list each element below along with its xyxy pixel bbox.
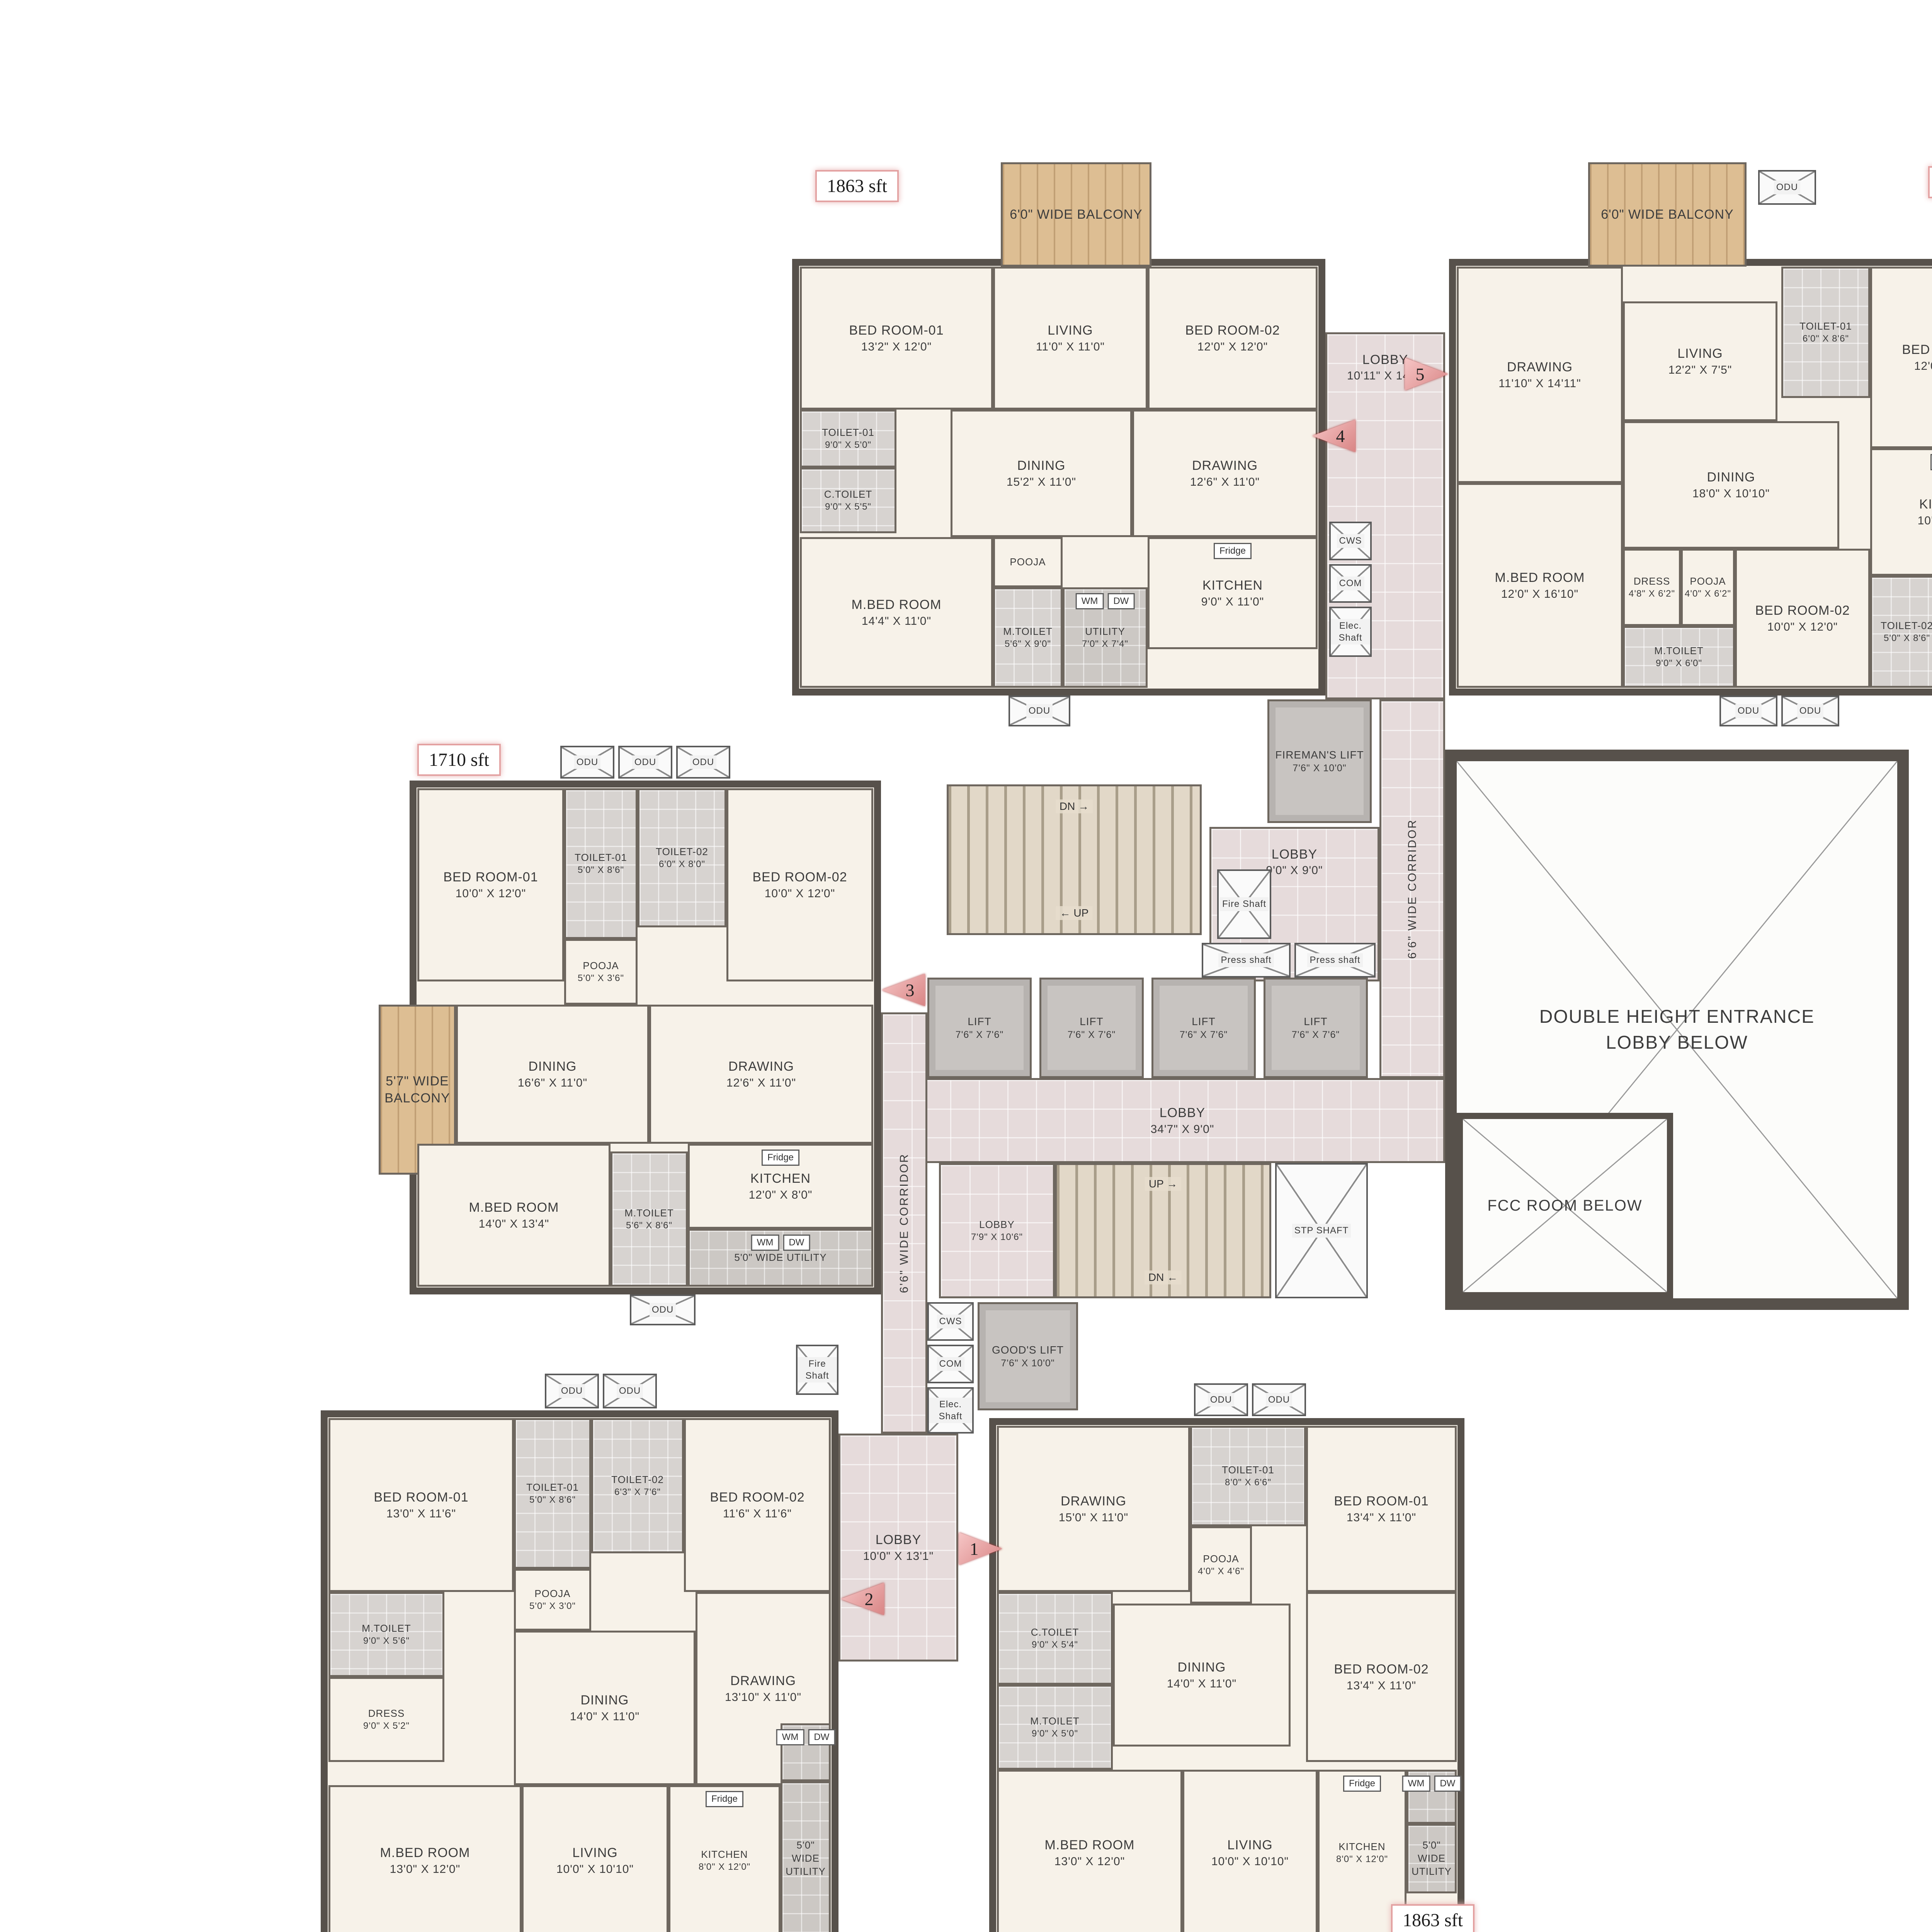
a-101-utility: WMDW [1406,1770,1457,1824]
a-101-m-bed-room: M.BED ROOM13'0" X 12'0" [997,1770,1182,1932]
room-label: ODU [1774,180,1800,194]
room-label: M.BED ROOM13'0" X 12'0" [1045,1837,1135,1869]
room-label: POOJA5'0" X 3'0" [529,1587,576,1612]
room-name: TOILET-02 [656,845,708,859]
room-label: 5'7" WIDE BALCONY [381,1073,454,1107]
room-dims: 7'6" X 7'6" [956,1029,1003,1041]
room-dims: 6'3" X 7'6" [611,1486,664,1498]
room-dims: 13'4" X 11'0" [1334,1510,1429,1525]
core-fcc-room-below: FCC ROOM BELOW [1457,1113,1673,1298]
a-105-dining: DINING18'0" X 10'10" [1623,421,1839,549]
room-name: 6'6" WIDE CORRIDOR [897,1153,912,1293]
a-105-m-toilet: M.TOILET9'0" X 6'0" [1623,626,1735,688]
core-press-shaft: Press shaft [1294,943,1376,978]
room-name: ODU [1774,180,1800,194]
room-name: 6'0" WIDE BALCONY [1601,206,1734,223]
core-com: COM [1329,564,1372,603]
room-name: C.TOILET [1031,1626,1079,1639]
room-dims: 9'0" X 5'0" [822,439,874,451]
room-name: DINING [1692,469,1770,486]
core-lift: LIFT7'6" X 7'6" [1264,978,1368,1078]
room-name: LOBBY [971,1218,1023,1231]
room-dims: 34'7" X 9'0" [1151,1122,1214,1137]
a-103-odu: ODU [676,746,730,779]
room-label: LIVING10'0" X 10'10" [556,1844,634,1876]
room-label: DINING14'0" X 11'0" [570,1692,639,1724]
dw-chip: DW [1434,1776,1461,1792]
room-dims: 5'6" X 9'0" [1003,638,1052,650]
room-name: CWS [937,1315,964,1328]
core-cws: CWS [1329,522,1372,560]
a-102-odu: ODU [603,1374,657,1408]
wm-chip: WM [776,1729,804,1745]
room-dims: 14'0" X 11'0" [1167,1676,1236,1691]
room-name: BED ROOM-02 [1334,1661,1429,1678]
a-102-odu: ODU [545,1374,599,1408]
room-label: LOBBY10'0" X 13'1" [863,1531,934,1563]
room-dims: 13'0" X 11'6" [374,1506,468,1521]
room-label: DRESS9'0" X 5'2" [363,1707,410,1732]
a-105-m-bed-room: M.BED ROOM12'0" X 16'10" [1457,483,1623,688]
core-6-6-wide-corridor: 6'6" WIDE CORRIDOR [1379,699,1445,1078]
room-label: M.BED ROOM14'4" X 11'0" [852,596,942,628]
room-label: POOJA5'0" X 3'6" [578,959,624,985]
room-label: 6'0" WIDE BALCONY [1601,206,1734,223]
appliance-chips: Fridge [706,1791,743,1807]
a-105-pooja: POOJA4'0" X 6'2" [1681,549,1735,626]
marker-number: 2 [865,1589,874,1609]
room-name: KITCHEN [749,1170,813,1187]
room-name: LOBBY [1151,1104,1214,1121]
room-label: ODU [559,1384,585,1398]
room-label: DRAWING11'10" X 14'11" [1498,359,1581,391]
marker-triangle-icon [1312,420,1355,452]
room-label: 5'0" WIDE UTILITY [1408,1839,1455,1878]
room-label: LIVING12'2" X 7'5" [1668,345,1732,377]
room-label: CWS [1337,534,1364,548]
room-label: GOOD'S LIFT7'6" X 10'0" [992,1343,1064,1370]
marker-triangle-icon [841,1583,884,1615]
dw-chip: DW [1107,593,1134,609]
a-104-drawing: DRAWING12'6" X 11'0" [1132,410,1318,537]
room-label: DINING15'2" X 11'0" [1007,457,1076,489]
room-name: BED ROOM-02 [710,1489,804,1506]
room-dims: 11'10" X 14'11" [1498,376,1581,391]
room-dims: 9'0" X 5'5" [824,501,872,513]
room-name: M.TOILET [1654,645,1703,658]
room-name: BED ROOM-01 [443,869,538,886]
a-102-utility: WMDW [781,1723,831,1781]
a-102-m-bed-room: M.BED ROOM13'0" X 12'0" [328,1785,522,1932]
a-104-c-toilet: C.TOILET9'0" X 5'5" [800,468,896,533]
a-104-utility: UTILITY7'0" X 7'4"WMDW [1063,587,1148,688]
room-dims: 12'0" X 16'10" [1495,587,1585,602]
a-103-pooja: POOJA5'0" X 3'6" [564,939,638,1005]
room-label: BED ROOM-0113'2" X 12'0" [849,322,944,354]
room-label: TOILET-025'0" X 8'6" [1881,619,1932,645]
room-name: ODU [1797,704,1823,718]
a-105-dress: DRESS4'8" X 6'2" [1623,549,1681,626]
room-name: TOILET-01 [1799,320,1852,333]
core-lift: LIFT7'6" X 7'6" [1151,978,1256,1078]
room-label: UTILITY7'0" X 7'4" [1082,625,1128,650]
room-name: DRAWING [1498,359,1581,376]
room-name: 5'0" WIDE UTILITY [782,1839,829,1878]
a-104-m-toilet: M.TOILET5'6" X 9'0" [993,587,1063,688]
a-104-bed-room-01: BED ROOM-0113'2" X 12'0" [800,267,993,410]
room-label: DRAWING15'0" X 11'0" [1059,1493,1128,1525]
core-stair: UP →DN ← [1055,1163,1271,1298]
a-101-dining: DINING14'0" X 11'0" [1113,1604,1291,1747]
room-label: DOUBLE HEIGHT ENTRANCE LOBBY BELOW [1530,1004,1824,1056]
a-101-odu: ODU [1194,1383,1248,1416]
room-dims: 10'0" X 12'0" [443,886,538,901]
room-dims: 8'0" X 12'0" [1336,1853,1388,1865]
a-105-living: LIVING12'2" X 7'5" [1623,301,1777,421]
room-name: LIVING [1036,322,1105,339]
room-dims: 7'6" X 7'6" [1292,1029,1340,1041]
door-marker-3: 3 [882,974,925,1006]
appliance-chips: WMDW [1402,1776,1461,1792]
stair-dn-label: DN → [1056,799,1093,813]
room-dims: 7'9" X 10'6" [971,1231,1023,1243]
room-name: 5'7" WIDE BALCONY [381,1073,454,1107]
room-label: ODU [1266,1393,1292,1406]
room-label: TOILET-016'0" X 8'6" [1799,320,1852,345]
stair-dn-label: DN ← [1145,1270,1182,1284]
room-name: BED ROOM-02 [1185,322,1280,339]
room-name: POOJA [1198,1553,1244,1566]
fridge-chip: Fridge [1343,1776,1381,1792]
room-dims: 7'6" X 10'0" [1275,762,1364,775]
room-label: POOJA4'0" X 6'2" [1685,575,1731,600]
room-label: KITCHEN12'0" X 8'0" [749,1170,813,1202]
room-label: M.TOILET9'0" X 6'0" [1654,645,1703,670]
a-103-bed-room-01: BED ROOM-0110'0" X 12'0" [417,788,564,981]
room-label: BED ROOM-0113'0" X 11'6" [374,1489,468,1521]
a-101-pooja: POOJA4'0" X 4'6" [1190,1526,1252,1604]
room-name: DRAWING [725,1672,801,1689]
room-label: Press shaft [1307,953,1362,967]
room-label: 5'0" WIDE UTILITY [782,1839,829,1878]
core-lobby: LOBBY7'9" X 10'6" [939,1163,1055,1298]
room-name: LIVING [556,1844,634,1861]
room-name: ODU [559,1384,585,1398]
room-name: TOILET-01 [526,1481,579,1494]
room-dims: 10'0" X 10'10" [556,1862,634,1877]
room-name: Elec. Shaft [929,1398,972,1423]
room-name: FIREMAN'S LIFT [1275,748,1364,762]
room-dims: 8'0" X 6'6" [1222,1476,1274,1488]
room-dims: 11'0" X 11'0" [1036,339,1105,354]
wm-chip: WM [1076,593,1104,609]
room-name: 5'0" WIDE UTILITY [734,1251,827,1264]
floor-plan: LOBBY10'11" X 14'8"6'6" WIDE CORRIDORLOB… [0,0,1932,1932]
room-name: ODU [650,1303,676,1316]
room-name: M.TOILET [624,1207,673,1220]
room-name: KITCHEN [1201,577,1264,594]
room-name: UTILITY [1082,625,1128,638]
room-label: DINING14'0" X 11'0" [1167,1659,1236,1691]
room-label: 6'6" WIDE CORRIDOR [897,1153,912,1293]
room-name: LIVING [1668,345,1732,362]
room-dims: 9'0" X 6'0" [1654,657,1703,669]
room-label: 6'0" WIDE BALCONY [1010,206,1143,223]
a-105-kitchen: KITCHEN10'6" X 9'4"Fridge [1870,448,1932,576]
room-label: BED ROOM-0112'0" X 13'6" [1902,341,1932,373]
room-label: TOILET-015'0" X 8'6" [575,851,627,876]
a-105-toilet-01: TOILET-016'0" X 8'6" [1781,267,1870,398]
room-label: TOILET-019'0" X 5'0" [822,426,874,451]
a-103-odu: ODU [630,1294,696,1325]
room-label: 5'0" WIDE UTILITY [734,1251,827,1264]
room-label: BED ROOM-0211'6" X 11'6" [710,1489,804,1521]
room-dims: 4'0" X 4'6" [1198,1565,1244,1577]
room-name: M.BED ROOM [852,596,942,613]
a-102-toilet-01: TOILET-015'0" X 8'6" [514,1418,591,1569]
room-label: M.BED ROOM14'0" X 13'4" [469,1199,559,1231]
room-name: ODU [1735,704,1762,718]
room-label: DRESS4'8" X 6'2" [1629,575,1675,600]
room-dims: 5'6" X 8'6" [624,1219,673,1231]
room-name: M.TOILET [1003,625,1052,638]
room-dims: 12'0" X 8'0" [749,1187,813,1202]
room-name: TOILET-02 [611,1473,664,1486]
room-name: BED ROOM-01 [849,322,944,339]
room-name: KITCHEN [1918,496,1932,513]
room-dims: 15'0" X 11'0" [1059,1510,1128,1525]
a-103-dining: DINING16'6" X 11'0" [456,1005,649,1144]
room-label: TOILET-018'0" X 6'6" [1222,1464,1274,1489]
room-name: COM [937,1357,964,1371]
room-name: M.TOILET [1030,1715,1079,1728]
room-name: M.BED ROOM [469,1199,559,1216]
room-name: Fire Shaft [1220,897,1269,911]
room-name: M.TOILET [362,1622,411,1635]
room-label: ODU [617,1384,643,1398]
room-name: ODU [617,1384,643,1398]
wm-chip: WM [751,1235,779,1251]
marker-triangle-icon [882,974,925,1006]
room-dims: 9'0" X 5'6" [362,1635,411,1647]
a-105-odu: ODU [1758,170,1816,205]
room-label: ODU [690,755,716,769]
room-name: POOJA [1010,556,1046,569]
core-cws: CWS [927,1302,974,1341]
room-dims: 6'0" X 8'6" [1799,333,1852,345]
room-label: LIFT7'6" X 7'6" [1180,1015,1228,1041]
room-dims: 7'6" X 7'6" [1180,1029,1228,1041]
a-105-odu: ODU [1781,696,1839,726]
room-label: KITCHEN8'0" X 12'0" [1336,1840,1388,1866]
room-dims: 12'0" X 13'6" [1902,359,1932,374]
marker-number: 5 [1416,364,1425,384]
room-dims: 5'0" X 3'6" [578,972,624,984]
room-name: KITCHEN [1336,1840,1388,1854]
marker-number: 4 [1336,426,1345,446]
room-name: BED ROOM-01 [1902,341,1932,358]
a-105-bed-room-01: BED ROOM-0112'0" X 13'6" [1870,267,1932,448]
room-name: DRESS [363,1707,410,1720]
room-label: KITCHEN10'6" X 9'4" [1918,496,1932,528]
room-label: ODU [650,1303,676,1316]
room-name: DOUBLE HEIGHT ENTRANCE LOBBY BELOW [1530,1004,1824,1056]
room-dims: 14'0" X 11'0" [570,1709,639,1724]
appliance-chips: WMDW [751,1235,810,1251]
room-dims: 13'4" X 11'0" [1334,1678,1429,1693]
core-lobby: LOBBY10'0" X 13'1" [838,1434,958,1662]
room-label: C.TOILET9'0" X 5'5" [824,488,872,513]
core-fire-shaft: Fire Shaft [796,1345,838,1395]
a-101-5-0-wide-utility: 5'0" WIDE UTILITY [1406,1824,1457,1893]
room-name: DRESS [1629,575,1675,588]
room-label: M.TOILET9'0" X 5'0" [1030,1715,1079,1740]
room-label: ODU [1797,704,1823,718]
room-dims: 13'0" X 12'0" [380,1862,470,1877]
core-lobby: LOBBY34'7" X 9'0" [920,1078,1445,1163]
room-dims: 9'0" X 5'4" [1031,1639,1079,1651]
room-dims: 14'0" X 13'4" [469,1216,559,1231]
room-dims: 9'0" X 5'0" [1030,1728,1079,1740]
room-name: LIFT [1180,1015,1228,1029]
core-elec-shaft: Elec. Shaft [927,1387,974,1434]
room-label: M.TOILET5'6" X 9'0" [1003,625,1052,650]
room-dims: 8'0" X 12'0" [699,1861,750,1873]
core-stp-shaft: STP SHAFT [1275,1163,1368,1298]
room-name: 6'0" WIDE BALCONY [1010,206,1143,223]
room-label: M.BED ROOM12'0" X 16'10" [1495,569,1585,601]
room-dims: 10'0" X 10'10" [1211,1854,1289,1869]
room-name: DRAWING [1059,1493,1128,1510]
room-name: BED ROOM-01 [1334,1493,1429,1510]
a-103-odu: ODU [618,746,672,779]
appliance-chips: Fridge [1930,454,1932,470]
stair-up-label: UP → [1145,1177,1181,1191]
room-dims: 5'0" X 3'0" [529,1600,576,1612]
room-name: BED ROOM-02 [752,869,847,886]
room-name: DINING [1167,1659,1236,1676]
a-104-kitchen: KITCHEN9'0" X 11'0"Fridge [1148,537,1318,649]
room-name: Press shaft [1307,953,1362,967]
room-dims: 10'6" X 9'4" [1918,513,1932,528]
room-name: LOBBY [1211,846,1378,863]
room-label: BED ROOM-0210'0" X 12'0" [752,869,847,901]
room-name: DINING [570,1692,639,1709]
room-label: CWS [937,1315,964,1328]
a-102-toilet-02: TOILET-026'3" X 7'6" [591,1418,684,1553]
room-name: LIFT [1292,1015,1340,1029]
room-label: Fire Shaft [798,1357,837,1383]
a-103-5-0-wide-utility: 5'0" WIDE UTILITYWMDW [688,1229,873,1287]
room-label: Fire Shaft [1220,897,1269,911]
a-101-bed-room-02: BED ROOM-0213'4" X 11'0" [1306,1592,1457,1762]
room-name: Fire Shaft [798,1357,837,1383]
stair-up-label: ← UP [1056,906,1093,920]
room-name: DINING [1007,457,1076,474]
room-name: FCC ROOM BELOW [1487,1195,1642,1216]
appliance-chips: Fridge [1343,1776,1381,1792]
marker-triangle-icon [959,1532,1002,1565]
room-name: TOILET-01 [822,426,874,439]
room-dims: 4'8" X 6'2" [1629,588,1675,600]
a-105-odu: ODU [1719,696,1777,726]
room-name: ODU [690,755,716,769]
room-label: FCC ROOM BELOW [1487,1195,1642,1216]
room-label: BED ROOM-0213'4" X 11'0" [1334,1661,1429,1693]
room-name: BED ROOM-02 [1755,602,1850,619]
room-name: 6'6" WIDE CORRIDOR [1405,819,1420,959]
room-label: BED ROOM-0212'0" X 12'0" [1185,322,1280,354]
room-name: M.BED ROOM [1495,569,1585,586]
room-dims: 10'0" X 13'1" [863,1549,934,1564]
a-102-bed-room-02: BED ROOM-0211'6" X 11'6" [684,1418,831,1592]
room-dims: 12'0" X 12'0" [1185,339,1280,354]
room-name: POOJA [529,1587,576,1600]
area-badge-a-105: 1990 sft [1928,166,1932,198]
room-label: DINING18'0" X 10'10" [1692,469,1770,501]
appliance-chips: WMDW [776,1729,835,1745]
room-name: ODU [574,755,600,769]
a-104-6-0-wide-balcony: 6'0" WIDE BALCONY [1001,162,1151,267]
area-badge-a-103: 1710 sft [417,744,501,776]
marker-number: 3 [906,980,915,1000]
appliance-chips: WMDW [1076,593,1135,609]
core-com: COM [927,1345,974,1383]
room-label: BED ROOM-0110'0" X 12'0" [443,869,538,901]
room-dims: 13'2" X 12'0" [849,339,944,354]
a-104-m-bed-room: M.BED ROOM14'4" X 11'0" [800,537,993,688]
a-101-living: LIVING10'0" X 10'10" [1182,1770,1318,1932]
room-name: TOILET-02 [1881,619,1932,633]
room-label: TOILET-026'0" X 8'0" [656,845,708,871]
room-label: M.BED ROOM13'0" X 12'0" [380,1844,470,1876]
room-label: ODU [1026,704,1053,718]
room-name: ODU [632,755,658,769]
room-label: DRAWING12'6" X 11'0" [1190,457,1260,489]
room-name: DINING [518,1058,587,1075]
room-name: LOBBY [863,1531,934,1548]
area-badge-a-104: 1863 sft [815,170,899,202]
a-103-kitchen: KITCHEN12'0" X 8'0"Fridge [688,1144,873,1229]
core-press-shaft: Press shaft [1202,943,1291,978]
room-name: ODU [1208,1393,1234,1406]
a-101-c-toilet: C.TOILET9'0" X 5'4" [997,1592,1113,1685]
a-104-toilet-01: TOILET-019'0" X 5'0" [800,410,896,468]
a-102-living: LIVING10'0" X 10'10" [522,1785,668,1932]
a-105-6-0-wide-balcony: 6'0" WIDE BALCONY [1588,162,1747,267]
a-103-m-bed-room: M.BED ROOM14'0" X 13'4" [417,1144,611,1287]
a-101-m-toilet: M.TOILET9'0" X 5'0" [997,1685,1113,1770]
room-label: Press shaft [1218,953,1274,967]
room-label: ODU [1735,704,1762,718]
a-101-drawing: DRAWING15'0" X 11'0" [997,1426,1190,1592]
area-badge-a-101: 1863 sft [1391,1904,1475,1932]
room-dims: 6'0" X 8'0" [656,858,708,870]
door-marker-4: 4 [1312,420,1355,452]
a-105-toilet-02: TOILET-025'0" X 8'6" [1870,576,1932,688]
room-label: ODU [574,755,600,769]
room-name: DRAWING [1190,457,1260,474]
core-good-s-lift: GOOD'S LIFT7'6" X 10'0" [978,1302,1078,1410]
room-dims: 9'0" X 11'0" [1201,594,1264,609]
a-102-pooja: POOJA5'0" X 3'0" [514,1569,591,1631]
room-label: M.TOILET9'0" X 5'6" [362,1622,411,1647]
room-label: 6'6" WIDE CORRIDOR [1405,819,1420,959]
room-label: BED ROOM-0113'4" X 11'0" [1334,1493,1429,1525]
room-name: LIVING [1211,1837,1289,1854]
door-marker-1: 1 [959,1532,1002,1565]
a-104-dining: DINING15'2" X 11'0" [951,410,1132,537]
